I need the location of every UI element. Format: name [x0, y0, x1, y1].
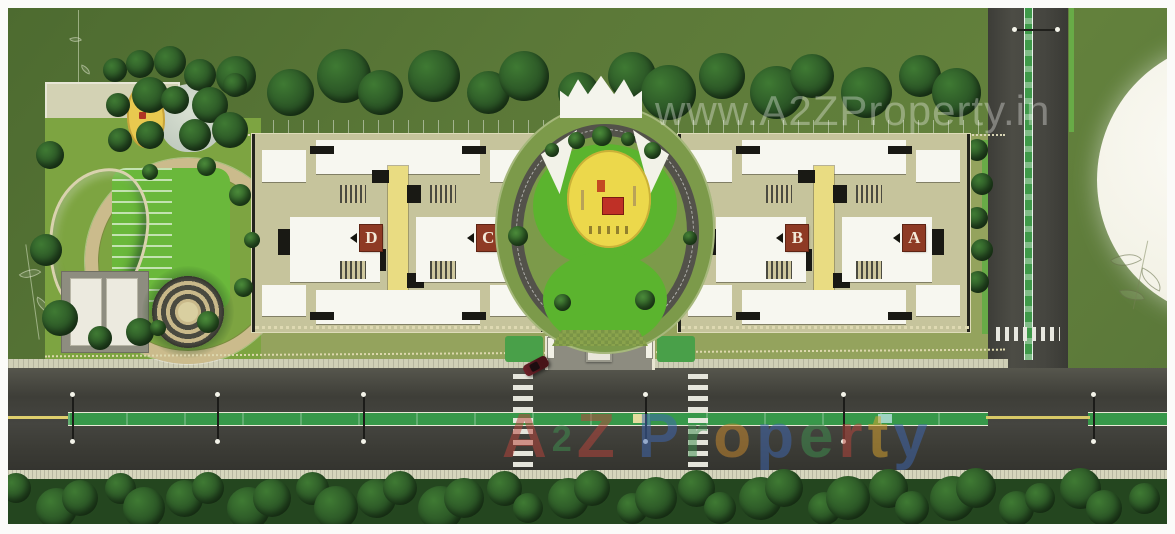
tree-icon [36, 141, 64, 169]
building-wing [742, 290, 906, 324]
play-equipment-icon [633, 186, 636, 206]
site-layout-plan: D C B [0, 0, 1175, 534]
stair-block [856, 261, 882, 279]
tree-icon [635, 477, 677, 519]
tree-icon [103, 58, 127, 82]
side-road-median [1024, 8, 1033, 360]
roof-shadow [372, 170, 390, 184]
main-road-median [1088, 412, 1167, 426]
brand-letter: A [502, 406, 552, 468]
tree-icon [621, 132, 635, 146]
brand-letter: r [838, 406, 867, 468]
play-equipment-icon [589, 226, 633, 234]
tree-icon [1025, 483, 1055, 513]
tree-icon [253, 479, 291, 517]
tree-icon [683, 231, 697, 245]
brand-letter: t [868, 406, 894, 468]
stair-block [430, 261, 456, 279]
frame-border [0, 0, 8, 534]
tree-icon [967, 271, 989, 293]
roof-shadow [888, 312, 911, 320]
roof-shadow [310, 312, 333, 320]
street-lamp-icon [217, 394, 219, 442]
frame-border [0, 524, 1175, 534]
brand-letter: r [684, 406, 713, 468]
tree-icon [1129, 483, 1160, 514]
roof-shadow [310, 146, 333, 154]
tree-icon [212, 112, 248, 148]
tower-block-ba: B A [678, 134, 970, 332]
street-lamp-icon [363, 394, 365, 442]
building-wing [316, 290, 480, 324]
building-wing [916, 285, 960, 317]
tree-icon [971, 173, 993, 195]
street-lamp-icon [1014, 29, 1058, 31]
tree-icon [554, 294, 571, 311]
tree-icon [223, 73, 247, 97]
brand-letter: Z [577, 406, 620, 468]
watermark-url: www.A2ZProperty.in [655, 90, 1175, 132]
tree-icon [704, 492, 736, 524]
roof-shadow [462, 146, 485, 154]
stair-block [340, 185, 366, 203]
tree-icon [123, 487, 165, 529]
roof-shadow [833, 185, 848, 203]
tree-icon [513, 493, 543, 523]
tree-icon [154, 46, 186, 78]
tower-label-b: B [771, 225, 808, 251]
brand-letter: p [756, 406, 799, 468]
tree-icon [150, 320, 166, 336]
lane-marking [986, 416, 1090, 419]
tower-letter: D [360, 225, 382, 251]
street-lamp-icon [72, 394, 74, 442]
stair-block [766, 261, 792, 279]
tree-icon [574, 470, 610, 506]
tree-icon [126, 50, 154, 78]
stair-block [430, 185, 456, 203]
tree-icon [192, 472, 224, 504]
tree-icon [895, 491, 929, 525]
roof-shadow [278, 229, 290, 255]
garden-apron [552, 330, 648, 346]
stair-block [766, 185, 792, 203]
street-lamp-icon [1093, 394, 1095, 442]
tree-icon [30, 234, 62, 266]
central-core [388, 166, 408, 301]
tree-icon [234, 278, 253, 297]
arrow-left-icon [771, 233, 783, 243]
roof-shadow [736, 312, 759, 320]
tree-icon [444, 478, 484, 518]
kids-play-area [567, 150, 651, 248]
arrow-left-icon [888, 233, 900, 243]
pedestrian-crossing [996, 327, 1060, 341]
tree-icon [126, 318, 154, 346]
tower-letter: B [786, 225, 808, 251]
tree-icon [568, 132, 585, 149]
tree-icon [358, 70, 403, 115]
building-wing [916, 150, 960, 182]
roof-shadow [736, 146, 759, 154]
tree-icon [644, 142, 661, 159]
play-equipment-icon [603, 198, 623, 214]
stair-block [856, 185, 882, 203]
tree-icon [408, 50, 460, 102]
tree-icon [136, 121, 164, 149]
tower-label-c: C [462, 225, 499, 251]
tree-icon [635, 290, 655, 310]
tree-icon [1086, 490, 1122, 526]
tree-icon [267, 69, 314, 116]
tree-icon [62, 480, 98, 516]
tree-icon [197, 157, 216, 176]
lane-marking [8, 416, 68, 419]
roof-shadow [798, 170, 816, 184]
tree-icon [88, 326, 112, 350]
central-core [814, 166, 834, 301]
tree-icon [765, 469, 803, 507]
brand-letter: P [638, 406, 684, 468]
tree-icon [197, 311, 219, 333]
tower-label-d: D [345, 225, 382, 251]
tree-icon [179, 119, 211, 151]
stair-block [340, 261, 366, 279]
brand-letter: y [893, 406, 932, 468]
roof-shadow [932, 229, 944, 255]
tree-icon [971, 239, 993, 261]
tree-icon [229, 184, 251, 206]
arrow-left-icon [345, 233, 357, 243]
frame-border [1167, 0, 1175, 534]
play-equipment-icon [581, 190, 584, 210]
tree-icon [826, 476, 870, 520]
brand-letter: o [713, 406, 756, 468]
roof-shadow [407, 185, 422, 203]
tree-icon [142, 164, 158, 180]
roadside-verge [982, 250, 988, 334]
brand-letter: 2 [552, 421, 577, 457]
tree-icon [545, 143, 559, 157]
building-wing [262, 285, 306, 317]
tree-icon [592, 126, 612, 146]
play-equipment-icon [597, 180, 605, 192]
tree-icon [106, 93, 130, 117]
tree-icon [383, 471, 417, 505]
tree-icon [956, 468, 996, 508]
arrow-left-icon [462, 233, 474, 243]
tree-icon [108, 128, 132, 152]
building-wing [262, 150, 306, 182]
tower-label-a: A [888, 225, 925, 251]
roof-shadow [462, 312, 485, 320]
tree-icon [161, 86, 189, 114]
watermark-brand: A2ZProperty [502, 406, 933, 468]
tree-icon [499, 51, 549, 101]
tower-letter: A [903, 225, 925, 251]
frame-border [0, 0, 1175, 8]
parking-row [681, 326, 969, 329]
brand-letter: e [799, 406, 838, 468]
tree-icon [244, 232, 260, 248]
tree-icon [42, 300, 78, 336]
roof-shadow [888, 146, 911, 154]
tree-icon [508, 226, 528, 246]
